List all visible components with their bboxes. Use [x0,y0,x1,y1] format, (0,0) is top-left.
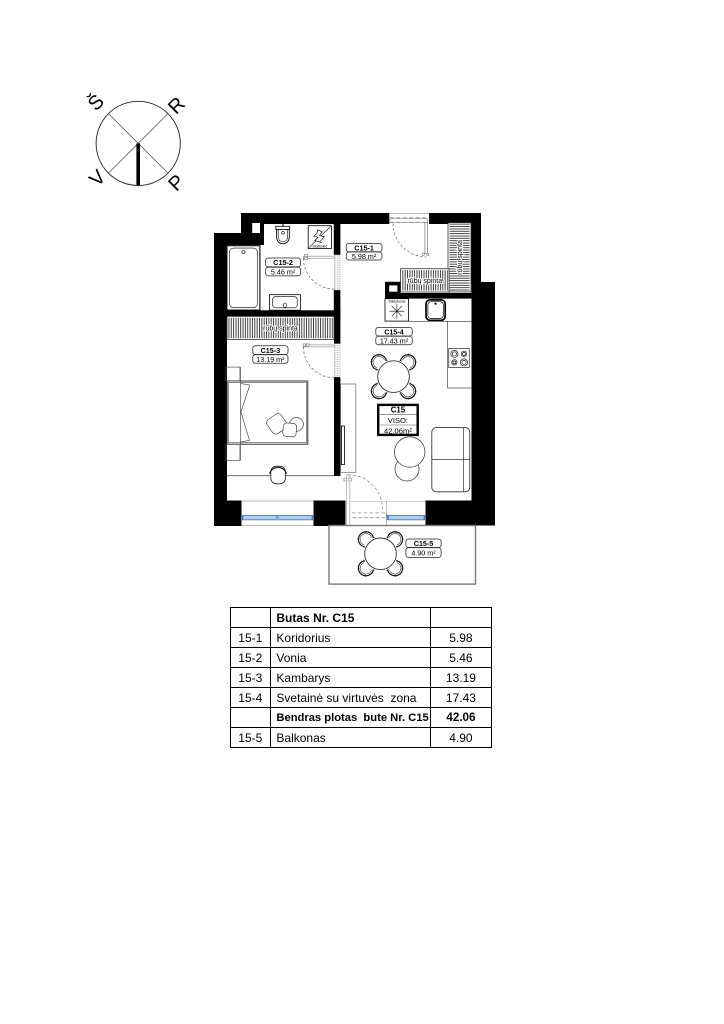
svg-text:5.98 m²: 5.98 m² [352,252,377,261]
svg-text:rūbų spinta: rūbų spinta [457,240,464,275]
svg-text:5.46 m²: 5.46 m² [271,267,296,276]
svg-text:R: R [164,93,190,119]
svg-text:17.43 m²: 17.43 m² [380,336,409,345]
svg-text:13.19 m²: 13.19 m² [256,355,285,364]
svg-text:C15-3: C15-3 [261,346,281,355]
svg-text:rūbų spinta: rūbų spinta [407,278,442,285]
svg-text:C15-2: C15-2 [273,258,293,267]
svg-text:Šaldytuvas: Šaldytuvas [388,299,405,304]
svg-text:C15: C15 [391,406,406,415]
svg-text:42.06m²: 42.06m² [384,426,412,435]
svg-text:C15-4: C15-4 [384,327,404,336]
svg-text:Š: Š [83,90,109,116]
svg-text:V: V [85,166,110,191]
svg-text:C15-5: C15-5 [414,539,434,548]
svg-text:P: P [164,171,189,196]
svg-text:VISO:: VISO: [388,416,408,425]
svg-text:4.90 m²: 4.90 m² [411,548,436,557]
svg-text:rūbų spinta: rūbų spinta [263,325,298,332]
svg-text:Skalbyklė: Skalbyklė [312,244,327,248]
